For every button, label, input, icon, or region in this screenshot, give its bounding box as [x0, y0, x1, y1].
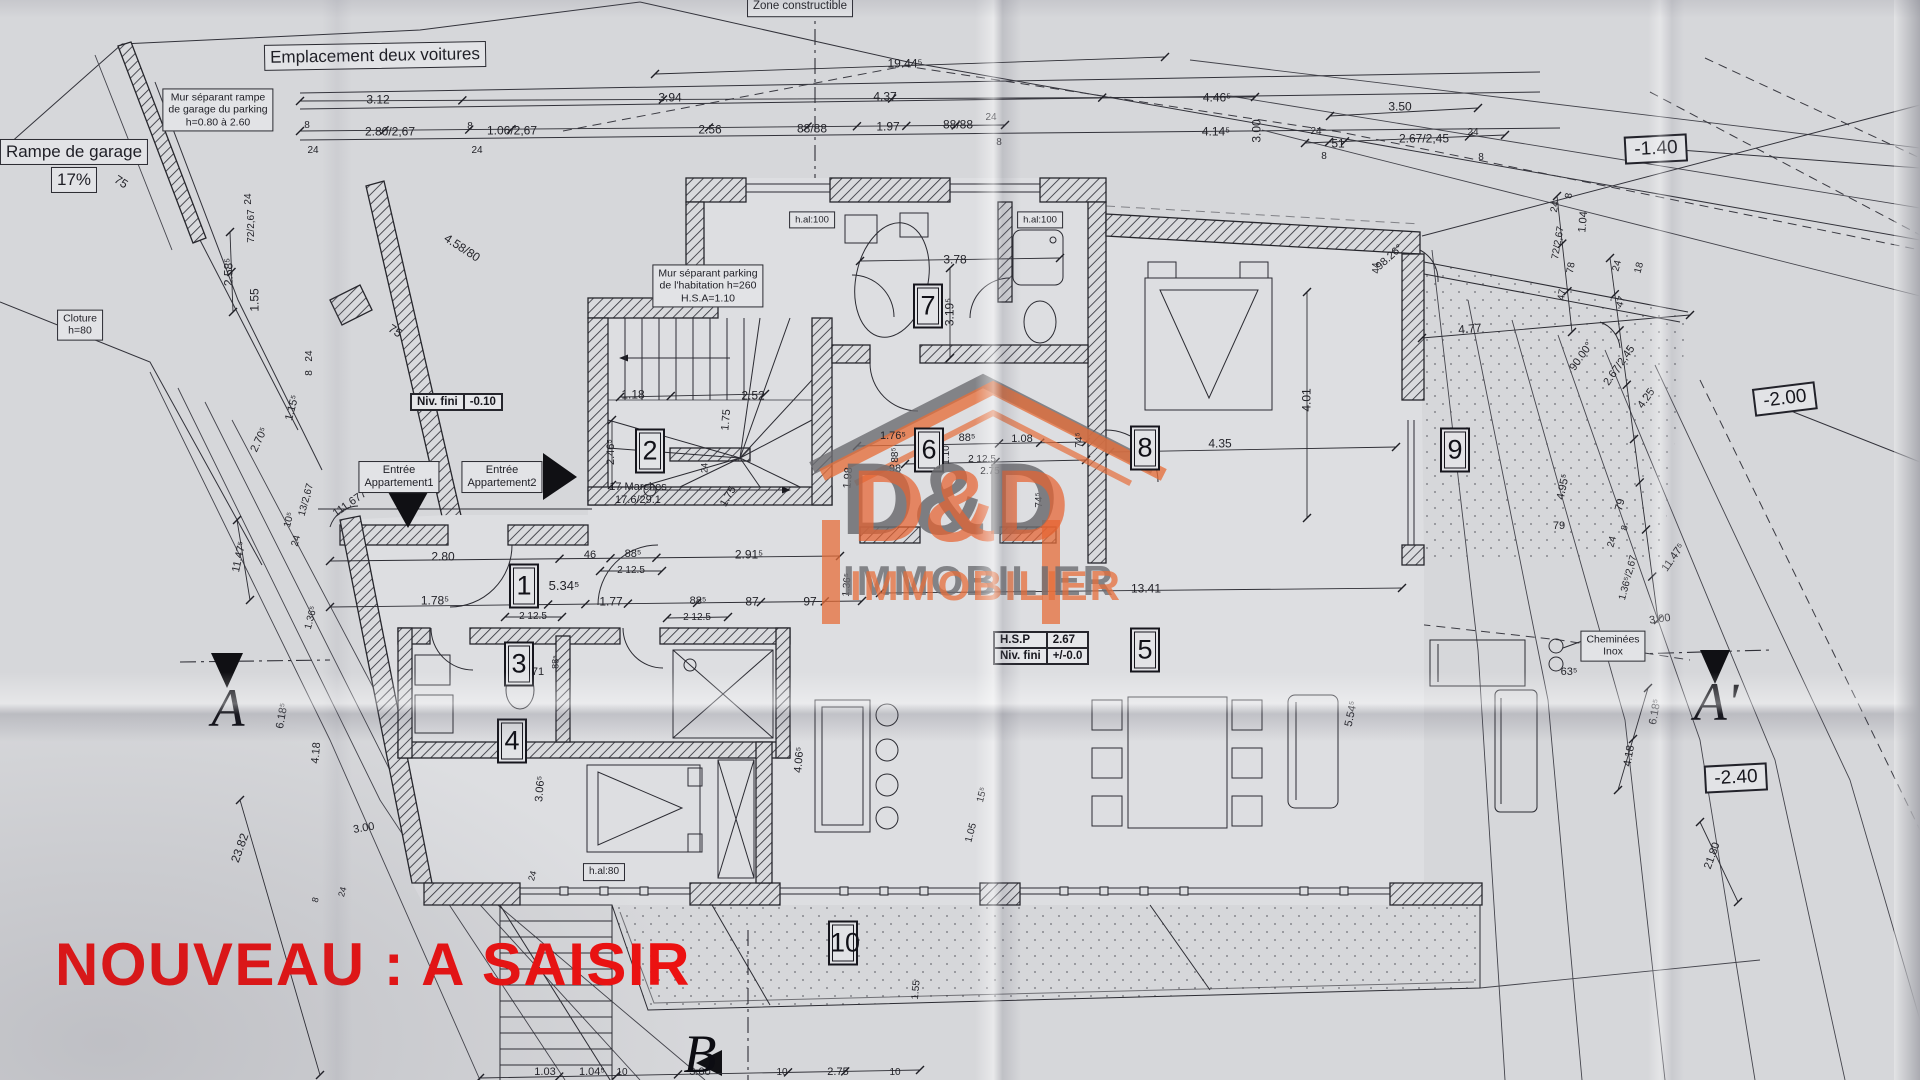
- dimension-label: 1.77: [599, 596, 622, 609]
- dimension-label: 51: [1331, 138, 1344, 151]
- dimension-label: 5.34⁵: [549, 579, 580, 593]
- dimension-label: 8: [996, 138, 1002, 149]
- dimension-label: 2.75: [827, 1067, 848, 1079]
- plan-label: h.al:100: [789, 211, 835, 228]
- dimension-label: 13.41: [1131, 583, 1161, 596]
- dimension-label: 24: [307, 146, 318, 157]
- dimension-label: 4.01: [1301, 388, 1314, 411]
- dimension-label: 1.04⁵: [579, 1067, 605, 1079]
- dimension-label: 2.80/2,67: [365, 126, 415, 139]
- logo-title: D&D: [852, 448, 1067, 565]
- dimension-label: 88⁵: [959, 433, 976, 445]
- dimension-label: 1.18: [621, 389, 644, 402]
- info-table-cell: 2.67: [1047, 632, 1089, 648]
- dimension-label: 8: [1478, 153, 1484, 164]
- dimension-label: 24: [471, 146, 482, 157]
- dimension-label: 2.91⁵: [735, 549, 763, 562]
- dimension-label: 3.06⁵: [534, 776, 548, 803]
- dimension-label: 1.08: [1011, 434, 1032, 446]
- info-table: H.S.P2.67Niv. fini+/-0.0: [993, 631, 1089, 665]
- dimension-label: 24: [1550, 201, 1562, 214]
- dimension-label: 1.06/2,67: [487, 125, 537, 138]
- dimension-label: 4.14⁵: [1202, 126, 1230, 139]
- dimension-label: 3.94: [658, 92, 681, 105]
- section-letter: B: [684, 1023, 717, 1080]
- dimension-label: 4.46⁵: [1203, 92, 1231, 105]
- dimension-label: 1.55: [911, 980, 923, 1000]
- room-number: 5: [1130, 628, 1160, 673]
- dimension-label: 2.52: [741, 390, 764, 403]
- dimension-label: 24: [244, 193, 255, 204]
- plan-label: Clotureh=80: [57, 310, 103, 341]
- dimension-label: 1.78⁵: [421, 595, 449, 608]
- info-table: Niv. fini-0.10: [410, 393, 503, 411]
- dimension-label: 1.03: [534, 1067, 555, 1079]
- room-number: 8: [1130, 426, 1160, 471]
- dimension-label: 8: [305, 370, 316, 376]
- dimension-label: 4.06⁵: [793, 747, 807, 774]
- plan-label: 17%: [51, 167, 97, 193]
- elevation-label: -1.40: [1624, 133, 1689, 164]
- floor-plan-scan: 3.128242.80/2,678241.06/2,672.563.944.37…: [0, 0, 1920, 1080]
- dimension-label: 3.12: [366, 94, 389, 107]
- dimension-label: 1.55: [249, 288, 262, 311]
- info-table-cell: +/-0.0: [1047, 648, 1089, 664]
- info-table-cell: Niv. fini: [411, 394, 464, 410]
- dimension-label: 4.37: [873, 91, 896, 104]
- dimension-label: 88⁵: [551, 655, 560, 669]
- dimension-label: 4.77: [1458, 322, 1482, 337]
- dimension-label: 2.80: [431, 551, 454, 564]
- dimension-label: 88/88: [943, 119, 973, 132]
- dimension-label: 4.18: [310, 742, 323, 764]
- section-letter: A: [212, 677, 245, 739]
- plan-label: Mur séparant parkingde l'habitation h=26…: [652, 264, 763, 307]
- dimension-label: 4.35: [1208, 438, 1231, 451]
- dimension-label: 3.78: [943, 254, 966, 267]
- plan-label: h.al:100: [1017, 211, 1063, 228]
- logo-subtitle: IMMOBILIER: [850, 562, 1122, 610]
- dimension-label: 1.04: [1577, 211, 1590, 233]
- dimension-label: 24: [1310, 127, 1321, 138]
- dimension-label: 2.67/2,45: [1399, 133, 1449, 146]
- dimension-label: 3.50: [1388, 101, 1411, 114]
- room-number: 10: [828, 921, 858, 966]
- dimension-label: 2.58⁵: [223, 258, 236, 286]
- dimension-label: 8: [467, 122, 473, 133]
- room-number: 9: [1440, 428, 1470, 473]
- dimension-label: 97: [803, 596, 816, 609]
- plan-label: EntréeAppartement2: [461, 461, 542, 493]
- dimension-label: 88/88: [797, 123, 827, 136]
- info-table-cell: H.S.P: [994, 632, 1047, 648]
- plan-label: EntréeAppartement1: [358, 461, 439, 493]
- dimension-label: 10: [776, 1068, 787, 1079]
- dimension-label: 44: [1372, 262, 1383, 273]
- plan-label: CheminéesInox: [1580, 631, 1645, 662]
- dimension-label: 1.75: [720, 409, 733, 431]
- dimension-label: 2 12.5: [683, 613, 711, 624]
- dimension-label: 24: [1467, 128, 1478, 139]
- dimension-label: 3.19⁵: [944, 298, 957, 326]
- dimension-label: 2 12.5: [617, 566, 645, 577]
- dimension-label: 2.46⁵: [606, 439, 618, 465]
- dimension-label: 8: [1321, 152, 1327, 163]
- dimension-label: 8: [304, 121, 310, 132]
- dimension-label: 10: [616, 1068, 627, 1079]
- dimension-label: 46: [584, 550, 596, 562]
- plan-label: Zone constructible: [747, 0, 853, 17]
- plan-label: Mur séparant rampede garage du parkingh=…: [162, 88, 273, 131]
- dimension-label: 24: [985, 113, 996, 124]
- plan-label: h.al:80: [583, 863, 625, 881]
- dimension-label: 10: [889, 1068, 900, 1079]
- dimension-label: 88⁵: [690, 596, 707, 608]
- dimension-label: 1.97: [876, 121, 899, 134]
- dimension-label: 2.56: [698, 124, 721, 137]
- dimension-label: 63⁵: [1561, 667, 1578, 679]
- dimension-label: 24: [305, 350, 316, 361]
- info-table-cell: -0.10: [464, 394, 502, 410]
- elevation-label: -2.40: [1704, 762, 1769, 793]
- watermark-text: NOUVEAU : A SAISIR: [55, 930, 691, 999]
- dimension-label: 72/2,67: [247, 209, 258, 242]
- room-number: 1: [509, 564, 539, 609]
- dimension-label: 3.00: [1251, 119, 1264, 142]
- info-table-cell: Niv. fini: [994, 648, 1047, 664]
- plan-label: 17 Marches17.6/29.1: [604, 479, 671, 509]
- room-number: 3: [504, 642, 534, 687]
- dimension-label: 1.76⁵: [880, 431, 906, 443]
- plan-label: Emplacement deux voitures: [264, 41, 486, 71]
- dimension-label: 24: [700, 463, 709, 473]
- room-number: 4: [497, 719, 527, 764]
- section-letter: A': [1694, 671, 1739, 733]
- dimension-label: 2 12.5: [519, 612, 547, 623]
- room-number: 7: [913, 284, 943, 329]
- dimension-label: 47: [1557, 289, 1569, 302]
- dimension-label: 87: [745, 596, 758, 609]
- dimension-label: 88⁵: [625, 549, 642, 561]
- dimension-label: 19.44⁵: [887, 58, 922, 71]
- plan-label: Rampe de garage: [0, 139, 148, 165]
- dimension-label: 74⁵: [1075, 432, 1086, 447]
- room-number: 2: [635, 429, 665, 474]
- dimension-label: 78: [1566, 262, 1578, 275]
- dimension-label: 79: [1553, 521, 1565, 533]
